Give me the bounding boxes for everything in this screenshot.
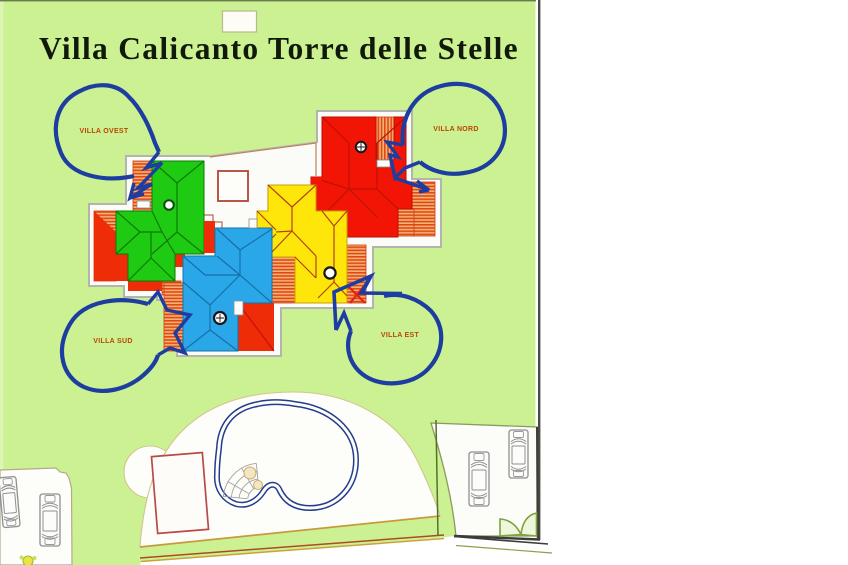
svg-text:VILLA NORD: VILLA NORD — [433, 126, 479, 133]
svg-text:VILLA OVEST: VILLA OVEST — [80, 128, 129, 135]
svg-text:VILLA EST: VILLA EST — [381, 332, 420, 339]
svg-text:VILLA SUD: VILLA SUD — [93, 338, 132, 345]
svg-text:Villa Calicanto Torre delle St: Villa Calicanto Torre delle Stelle — [39, 31, 519, 66]
